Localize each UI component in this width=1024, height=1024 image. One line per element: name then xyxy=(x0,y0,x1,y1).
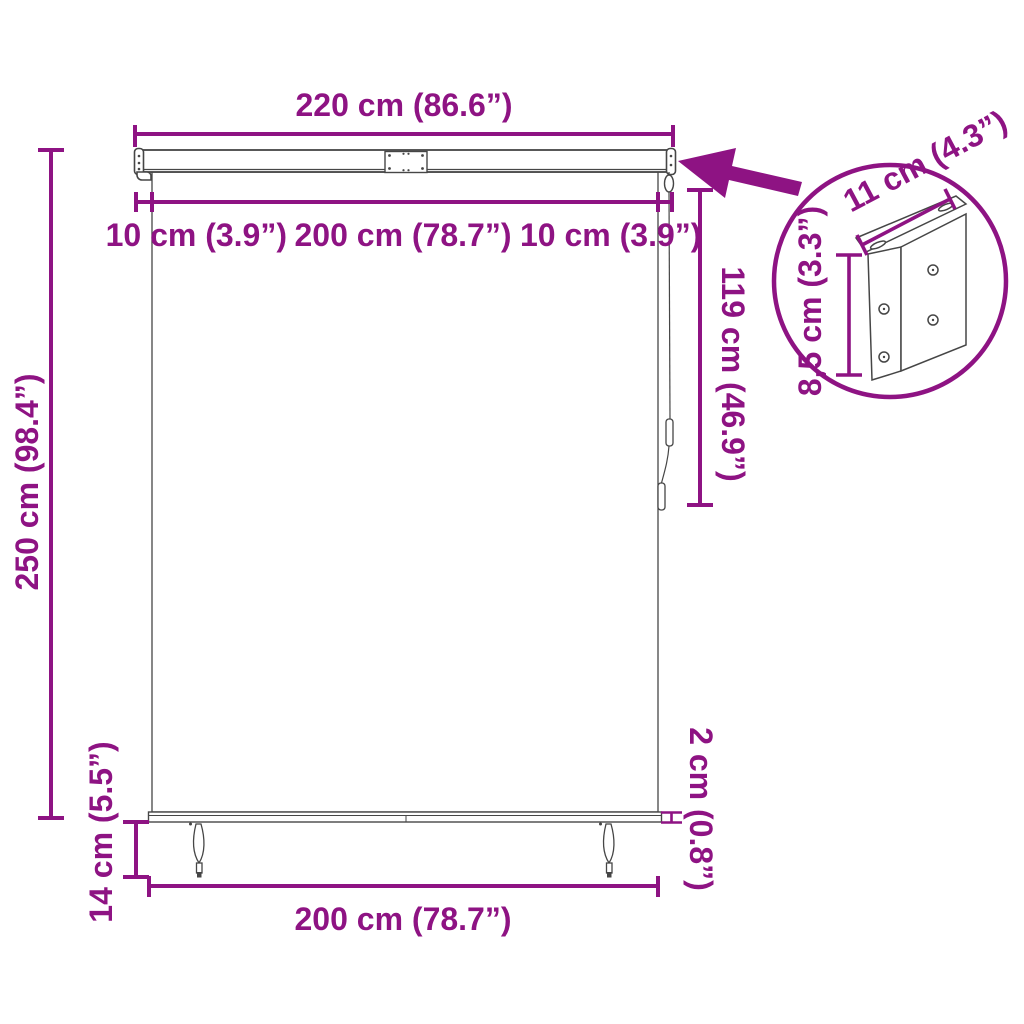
pull-handle-right xyxy=(603,824,614,878)
label-fabric-width: 200 cm (78.7”) xyxy=(294,219,511,251)
dim-total-width xyxy=(135,125,673,147)
product-outline xyxy=(135,149,676,878)
fabric-panel xyxy=(152,172,658,812)
bracket-front-face xyxy=(901,214,966,371)
dim-handle-length xyxy=(123,822,149,877)
label-bracket-height: 8,5 cm (3.3”) xyxy=(794,206,826,396)
label-fabric-width-bottom: 200 cm (78.7”) xyxy=(294,903,511,935)
cord-loop xyxy=(665,175,674,192)
dimension-diagram: 220 cm (86.6”) 10 cm (3.9”) 200 cm (78.7… xyxy=(0,0,1024,1024)
label-side-margin-right: 10 cm (3.9”) xyxy=(520,219,701,251)
pull-handle-left xyxy=(193,824,204,878)
mounting-bracket-3d xyxy=(856,196,966,380)
label-total-height: 250 cm (98.4”) xyxy=(11,373,43,590)
dim-bracket-height xyxy=(836,255,862,375)
dim-bar-thickness xyxy=(661,813,682,823)
label-side-margin-left: 10 cm (3.9”) xyxy=(106,219,287,251)
label-total-width: 220 cm (86.6”) xyxy=(295,89,512,121)
dim-bottom-width xyxy=(149,876,658,897)
center-bracket xyxy=(385,152,427,173)
bottom-bar xyxy=(149,812,662,826)
roller-blind-drawing xyxy=(0,0,1024,1024)
label-cord-length: 119 cm (46.9”) xyxy=(717,266,749,481)
label-bar-thickness: 2 cm (0.8”) xyxy=(685,727,717,891)
label-handle-length: 14 cm (5.5”) xyxy=(85,741,117,922)
